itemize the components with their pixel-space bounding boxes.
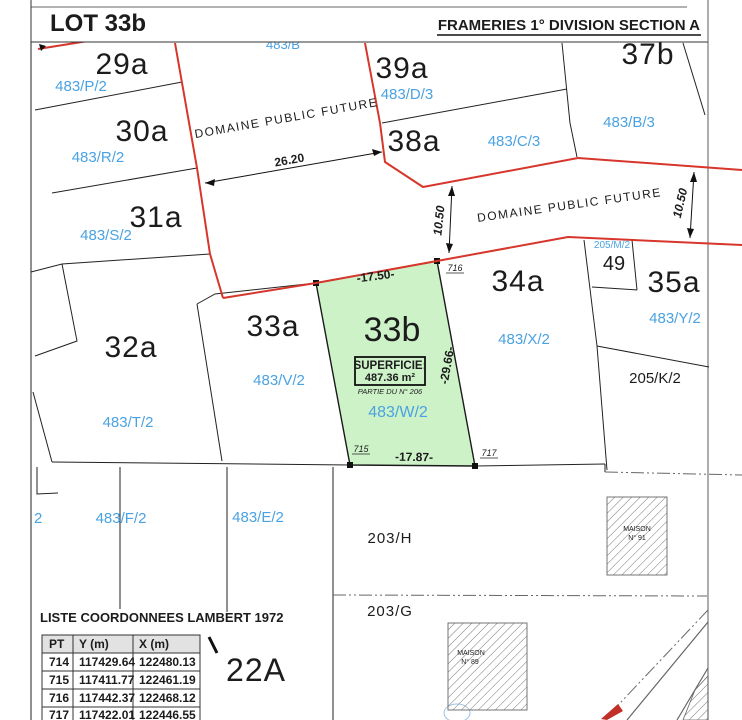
parcel-32a-label: 32a — [104, 331, 157, 364]
north-tick-mark — [209, 637, 217, 653]
boundary-30a-31a — [52, 168, 197, 193]
parcel-31a-label: 31a — [129, 201, 182, 234]
corner-point-715 — [347, 462, 353, 468]
page-title: LOT 33b — [50, 10, 146, 37]
maison-91-number: N° 91 — [628, 534, 646, 542]
cell-pt-715: 715 — [49, 673, 69, 687]
limit-203h-203g — [333, 595, 707, 596]
parcel-483f-label: 483/F/2 — [96, 510, 147, 527]
maison-89-number: N° 89 — [461, 658, 479, 666]
cell-x-717: 122446.55 — [139, 708, 196, 720]
arrow-10-50-left — [449, 186, 452, 253]
cell-x-714: 122480.13 — [139, 655, 196, 669]
title-header: LOT 33b FRAMERIES 1° DIVISION SECTION A — [0, 0, 742, 42]
road-hatched-verge — [683, 676, 708, 720]
dim-10-50-right: 10.50 — [670, 187, 690, 220]
lot-33b-ref: 483/W/2 — [368, 404, 428, 421]
lot-33b-name: 33b — [364, 311, 421, 349]
table-row: 715 117411.77 122461.19 — [49, 673, 196, 687]
col-header-pt: PT — [49, 637, 65, 651]
parcel-35a-ref: 483/Y/2 — [649, 310, 701, 327]
dash-dot-limits — [333, 472, 742, 719]
parcel-22a-label: 22A — [226, 652, 286, 688]
boundary-37b-left — [562, 43, 577, 157]
point-717-label: 717 — [481, 448, 497, 458]
parcel-34a-ref: 483/X/2 — [498, 331, 550, 348]
coord-table-title: LISTE COORDONNEES LAMBERT 1972 — [40, 610, 283, 625]
parcel-33a-ref: 483/V/2 — [253, 372, 305, 389]
boundary-203h-top — [475, 464, 605, 466]
parcel-30a-label: 30a — [115, 115, 168, 148]
boundary-left-step — [37, 467, 58, 494]
table-row: 716 117442.37 122468.12 — [49, 691, 196, 705]
cell-y-715: 117411.77 — [79, 673, 135, 687]
point-715-label: 715 — [353, 444, 369, 454]
boundary-35a-205k — [597, 346, 709, 367]
parcel-31a-ref: 483/S/2 — [80, 227, 132, 244]
dim-10-50-left: 10.50 — [430, 205, 447, 237]
coord-table-header-bg — [42, 635, 200, 653]
maison-91-label: MAISON — [623, 526, 651, 533]
cell-pt-716: 716 — [49, 691, 69, 705]
dim-back-17-87: -17.87- — [395, 450, 433, 465]
parcel-38a-ref: 483/C/3 — [488, 133, 541, 150]
parcel-35a-label: 35a — [647, 266, 700, 299]
cell-y-716: 117442.37 — [79, 691, 135, 705]
table-row: 714 117429.64 122480.13 — [49, 655, 196, 669]
boundary-31a-32a — [31, 254, 210, 272]
cell-pt-714: 714 — [49, 655, 69, 669]
cell-x-715: 122461.19 — [139, 673, 196, 687]
parcel-49-label: 49 — [603, 253, 625, 275]
limit-right-of-203h — [605, 472, 742, 475]
parcel-203h-label: 203/H — [367, 530, 412, 547]
maison-89-footprint — [448, 623, 527, 710]
superficie-label: SUPERFICIE: — [354, 360, 427, 372]
parcel-37b-label: 37b — [621, 38, 674, 71]
domaine-public-future-2: DOMAINE PUBLIC FUTURE — [476, 185, 662, 225]
parcel-29a-label: 29a — [95, 48, 148, 81]
parcel-30a-ref: 483/R/2 — [72, 149, 125, 166]
table-row: 717 117422.01 122446.55 — [49, 708, 196, 720]
cell-y-717: 117422.01 — [79, 708, 135, 720]
buildings: MAISON N° 91 MAISON N° 89 — [448, 497, 667, 710]
parcel-34a-label: 34a — [491, 265, 544, 298]
parcel-49-ref: 205/M/2 — [594, 240, 631, 251]
partie-du-label: PARTIE DU N° 206 — [358, 387, 423, 396]
cadastral-plan-page: MAISON N° 91 MAISON N° 89 29a 483/P/2 30 — [0, 0, 742, 720]
parcel-483e-label: 483/E/2 — [232, 509, 284, 526]
parcel-33a-label: 33a — [246, 310, 299, 343]
parcel-203g-label: 203/G — [367, 603, 413, 620]
cell-pt-717: 717 — [49, 708, 69, 720]
domaine-public-future-1: DOMAINE PUBLIC FUTURE — [193, 95, 379, 141]
boundary-37b-right — [683, 43, 705, 115]
boundary-32a-southwest — [33, 392, 52, 462]
cadastral-map: MAISON N° 91 MAISON N° 89 29a 483/P/2 30 — [0, 0, 742, 720]
parcel-39a-label: 39a — [375, 52, 428, 85]
parcel-32a-ref: 483/T/2 — [103, 414, 154, 431]
col-header-y: Y (m) — [79, 637, 109, 651]
parcel-38a-label: 38a — [387, 125, 440, 158]
parcel-205k-label: 205/K/2 — [629, 370, 681, 387]
parcel-29a-ref: 483/P/2 — [55, 78, 107, 95]
boundary-32a-west — [35, 264, 77, 356]
boundary-49-bottom — [592, 287, 637, 290]
superficie-value: 487.36 m² — [365, 372, 415, 384]
boundary-32a-33a-bottom — [52, 462, 350, 465]
parcel-39a-ref: 483/D/3 — [381, 86, 434, 103]
boundary-49-right — [632, 240, 637, 290]
maison-89-label: MAISON — [457, 650, 485, 657]
cell-y-714: 117429.64 — [79, 655, 135, 669]
col-header-x: X (m) — [139, 637, 169, 651]
point-716-label: 716 — [447, 263, 462, 273]
boundary-32a-33a — [197, 304, 222, 461]
parcel-partial-left-label: 2 — [34, 510, 42, 527]
corner-point-717 — [472, 463, 478, 469]
section-title: FRAMERIES 1° DIVISION SECTION A — [438, 17, 700, 34]
parcel-37b-ref: 483/B/3 — [603, 114, 655, 131]
cell-x-716: 122468.12 — [139, 691, 196, 705]
red-road-arrow — [601, 704, 623, 720]
